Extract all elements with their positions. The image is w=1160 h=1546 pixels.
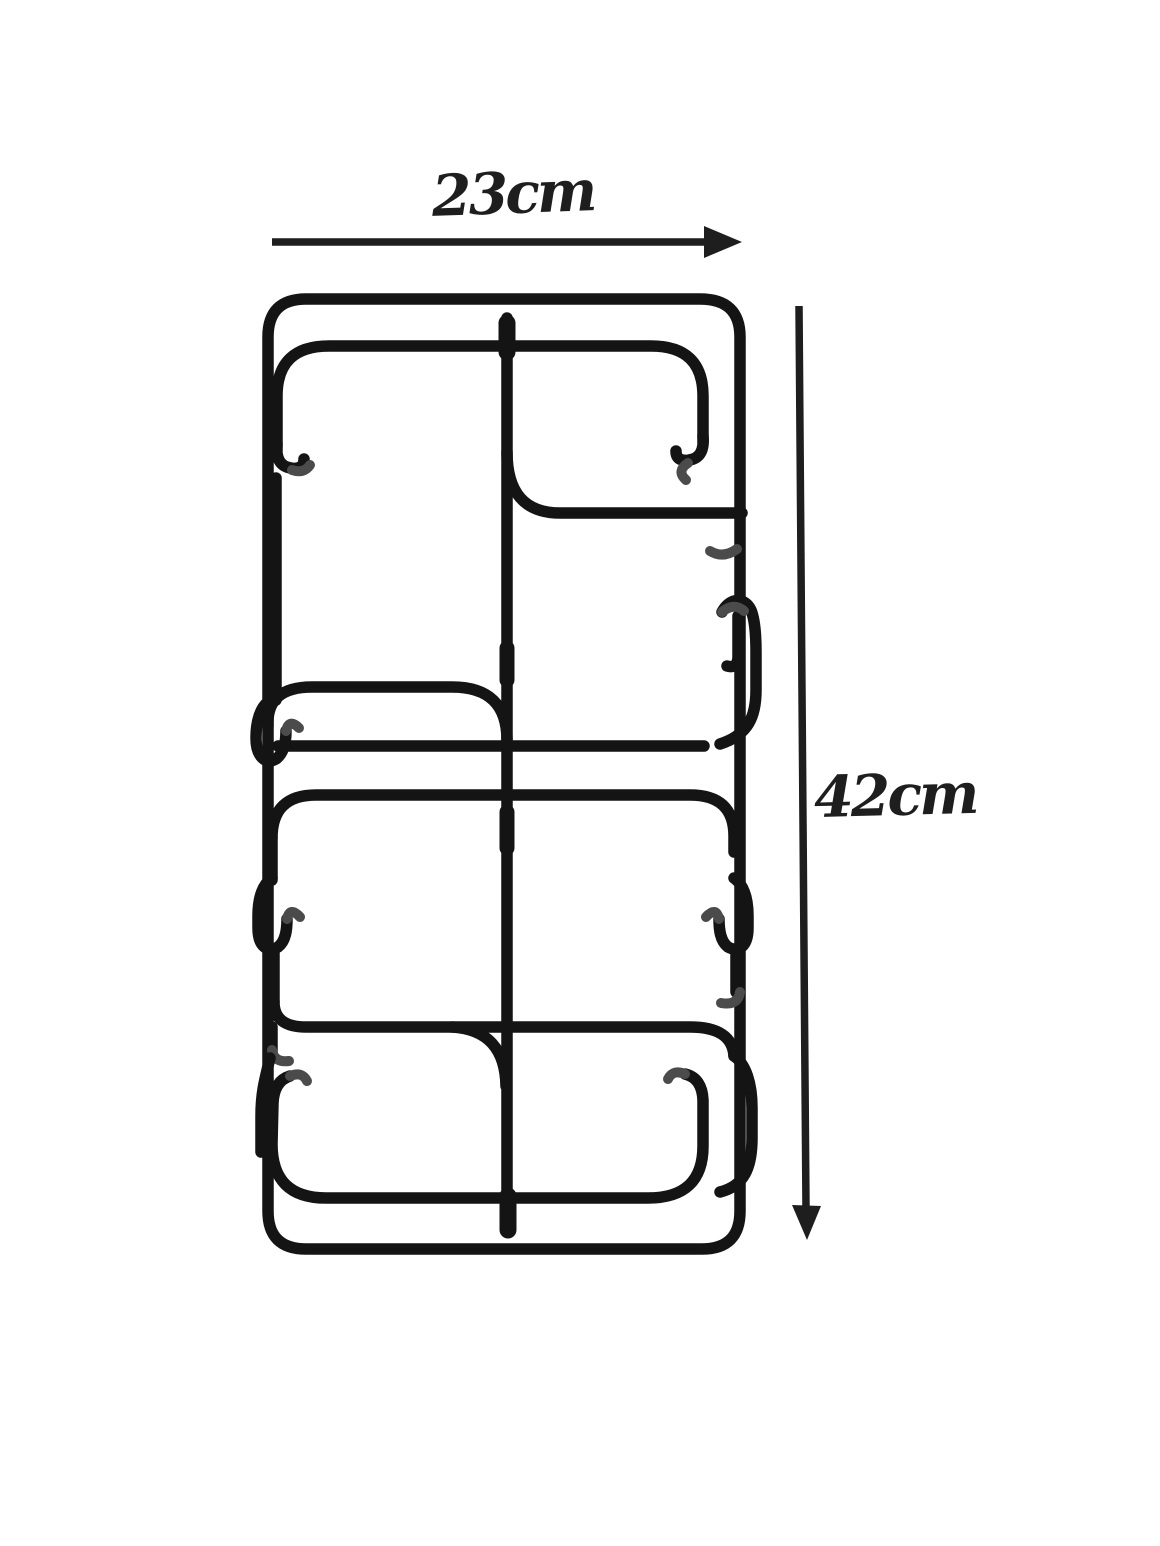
width-arrow-head — [704, 226, 742, 258]
grate-top-staple-right-curl — [676, 436, 703, 460]
height-dimension-label: 42cm — [813, 760, 977, 831]
curl-hook-icon — [286, 724, 299, 731]
curl-hook-icon — [706, 912, 719, 919]
height-arrow-line — [799, 306, 806, 1208]
height-arrow-head — [792, 1205, 821, 1240]
grate-left-half-rail-wire — [268, 687, 507, 740]
grate-bottom-staple-wire — [272, 1074, 703, 1198]
curl-hook-icon — [287, 912, 300, 919]
grate-upper-j-finger-wire — [507, 452, 742, 513]
curl-hook-icon — [710, 549, 737, 555]
width-dimension-label: 23cm — [427, 157, 599, 230]
curl-hook-icon — [681, 463, 688, 480]
grate-lower-j-finger-wire — [452, 1027, 506, 1086]
scene-graphic — [0, 0, 1160, 1546]
grate-top-staple-wire — [277, 346, 703, 450]
curl-hook-icon — [290, 1074, 307, 1081]
pan-support-grate — [256, 299, 756, 1249]
product-dimension-photo: 23cm 42cm — [0, 0, 1160, 1546]
curl-hook-icon — [668, 1072, 685, 1079]
grate-lower-right-hairpin-loop — [719, 878, 748, 949]
curl-hook-icon — [721, 992, 740, 1004]
right-arrow-icon — [272, 226, 742, 258]
curl-hook-icon — [292, 465, 310, 471]
curl-hook-icon — [722, 607, 744, 612]
grate-right-hairpin-inner-limb — [727, 616, 738, 667]
grate-top-staple-left-curl — [277, 444, 304, 468]
